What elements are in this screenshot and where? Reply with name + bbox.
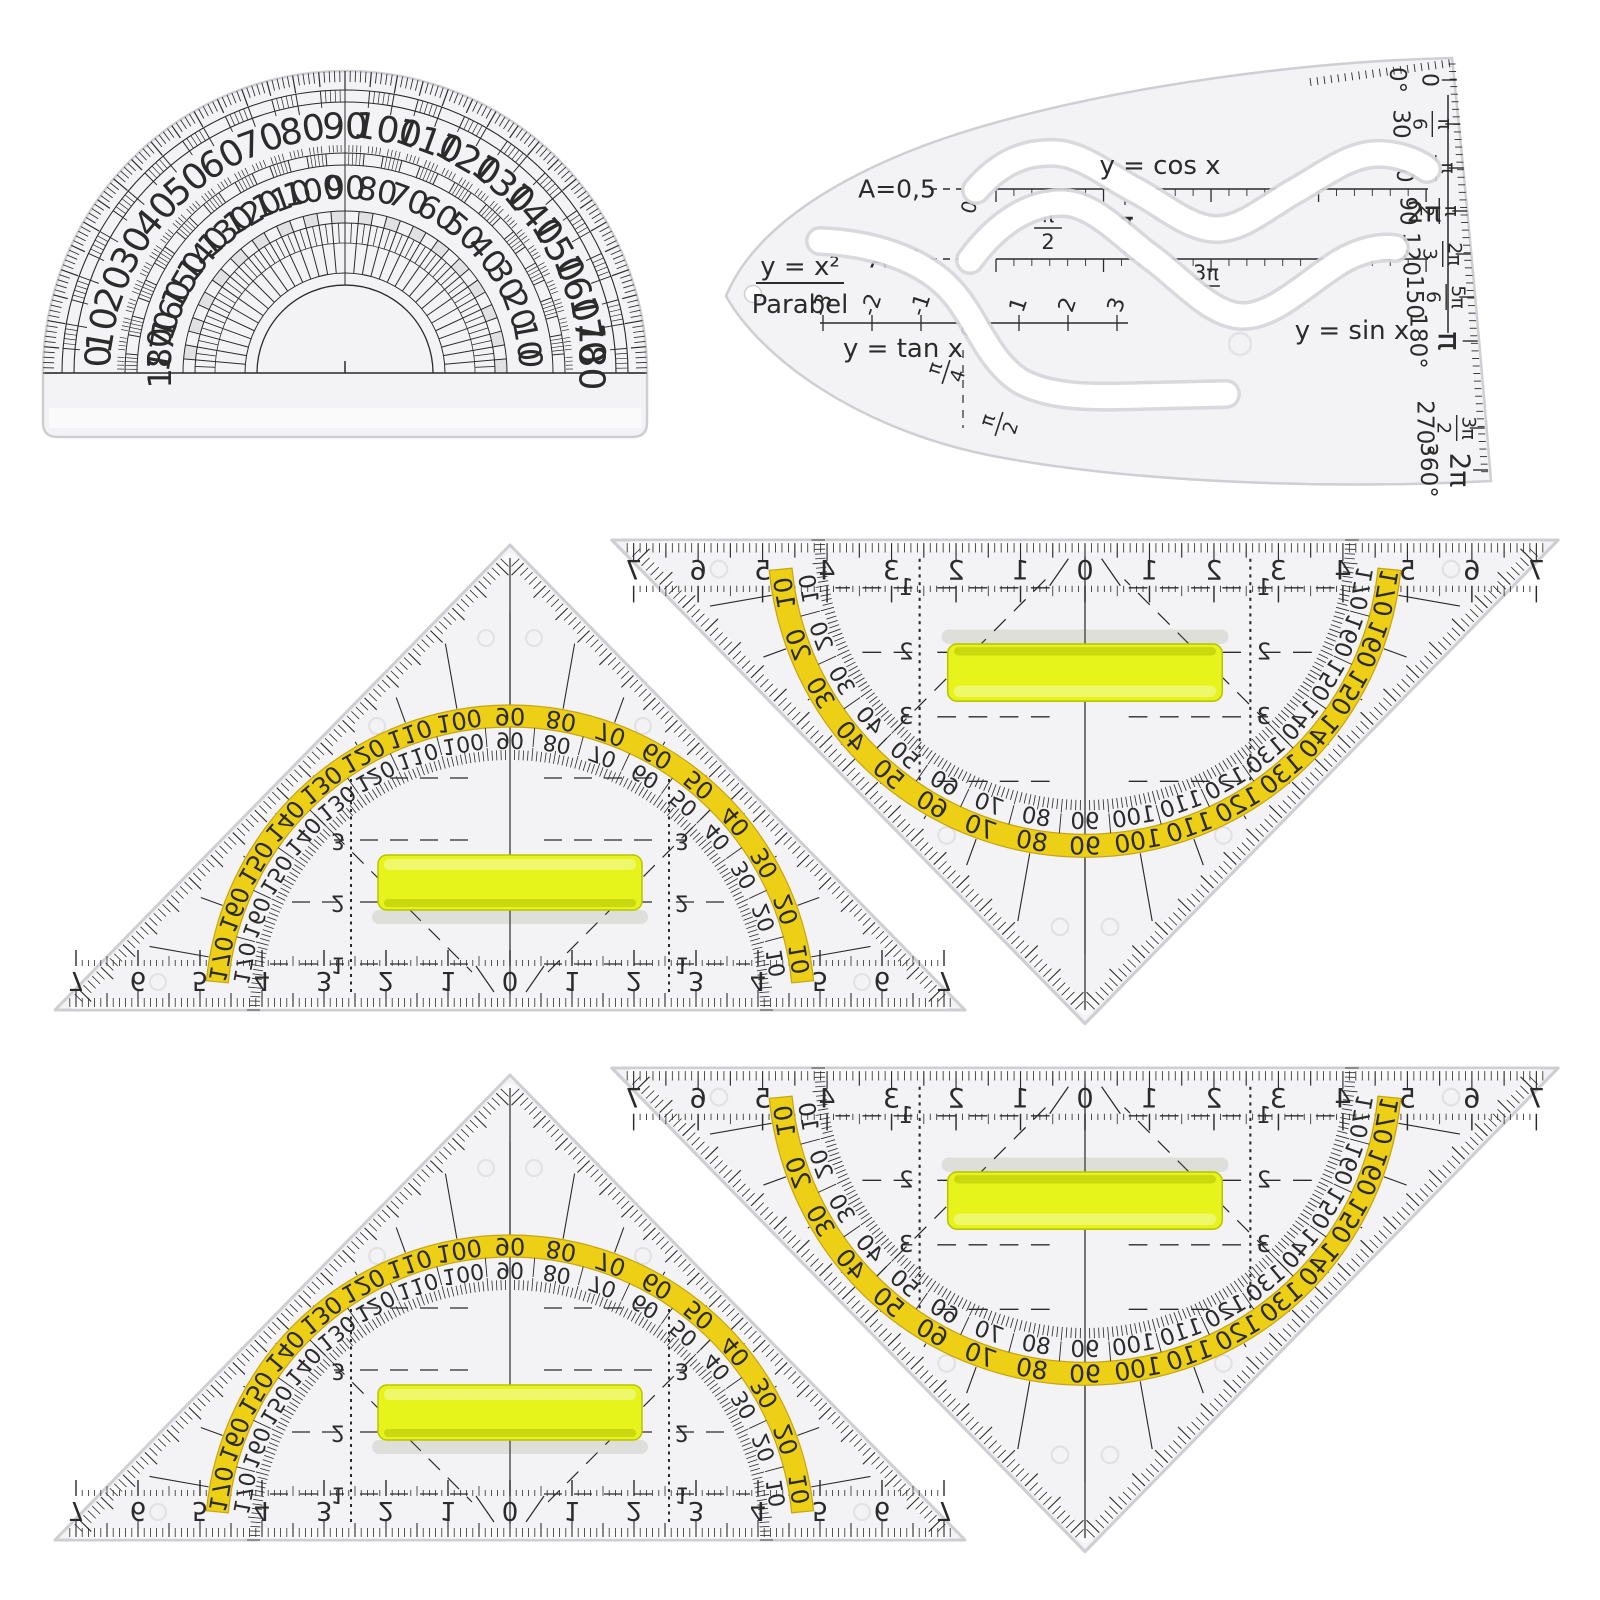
tan-curve-label: y = tan x	[843, 334, 963, 364]
svg-text:π: π	[1440, 205, 1462, 216]
trig-template-body	[726, 58, 1491, 484]
edge-degree-label: 0°	[1384, 67, 1410, 93]
amplitude-label: A=0,5	[858, 175, 936, 204]
edge-radian-label: 2π	[1444, 453, 1477, 488]
edge-degree-label: 360°	[1415, 442, 1441, 497]
geometry-set-photo: 0102030405060708090100110120130140150160…	[0, 0, 1600, 1600]
sin-curve-label: y = sin x	[1295, 316, 1410, 346]
svg-text:0: 0	[511, 348, 549, 368]
geometry-set-scene: 0102030405060708090100110120130140150160…	[0, 0, 1600, 1600]
parabola-equation-label: y = x²	[760, 252, 840, 282]
svg-text:2: 2	[1433, 422, 1455, 434]
svg-text:6: 6	[1422, 291, 1444, 303]
svg-text:3π: 3π	[1458, 416, 1480, 440]
svg-text:180: 180	[571, 322, 612, 391]
svg-text:80: 80	[276, 107, 328, 155]
svg-text:2: 2	[1415, 205, 1437, 217]
trig-template: y = x²ParabelA=0,5A=100π2π3π22π-3-2-1123…	[726, 58, 1491, 498]
edge-radian-label: 0	[1416, 73, 1441, 87]
cos-curve-label: y = cos x	[1099, 151, 1220, 181]
svg-text:π: π	[1433, 118, 1455, 129]
protractor: 0102030405060708090100110120130140150160…	[43, 71, 647, 437]
edge-radian-label: π	[1431, 331, 1469, 350]
svg-text:6: 6	[1408, 118, 1430, 130]
svg-text:2: 2	[1041, 230, 1054, 254]
svg-text:2π: 2π	[1444, 242, 1466, 266]
svg-text:5π: 5π	[1447, 285, 1469, 309]
svg-text:3: 3	[1419, 248, 1441, 260]
